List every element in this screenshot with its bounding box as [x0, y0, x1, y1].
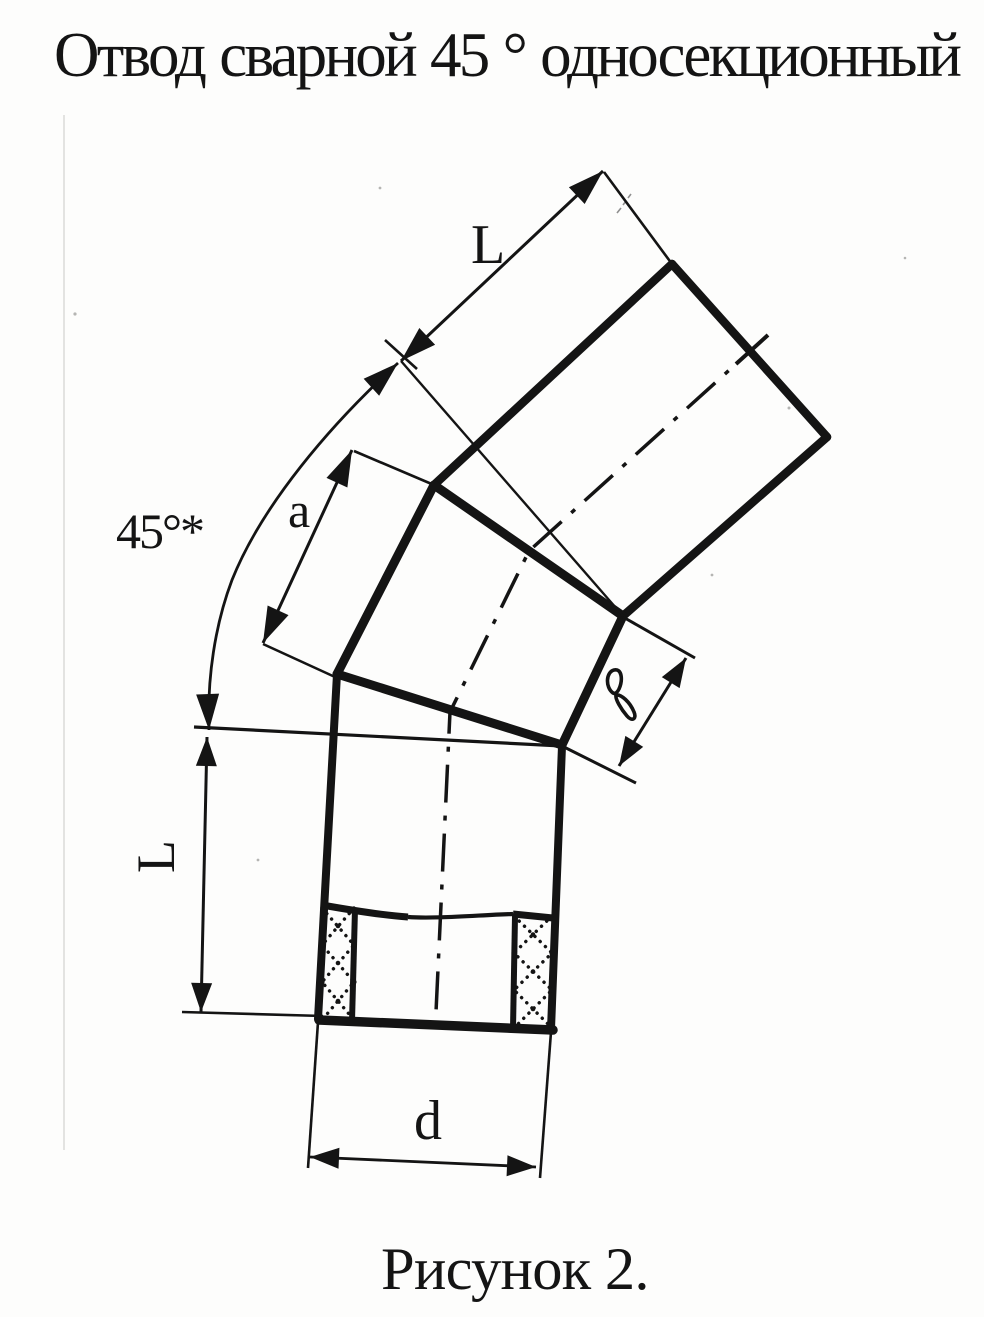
svg-text:Отвод сварной 45 ° односекцион: Отвод сварной 45 ° односекционный: [54, 20, 961, 90]
svg-text:45°*: 45°*: [116, 503, 203, 559]
svg-text:a: a: [288, 482, 310, 538]
svg-text:d: d: [414, 1090, 442, 1152]
svg-text:Рисунок 2.: Рисунок 2.: [381, 1236, 649, 1303]
svg-text:L: L: [126, 840, 186, 873]
